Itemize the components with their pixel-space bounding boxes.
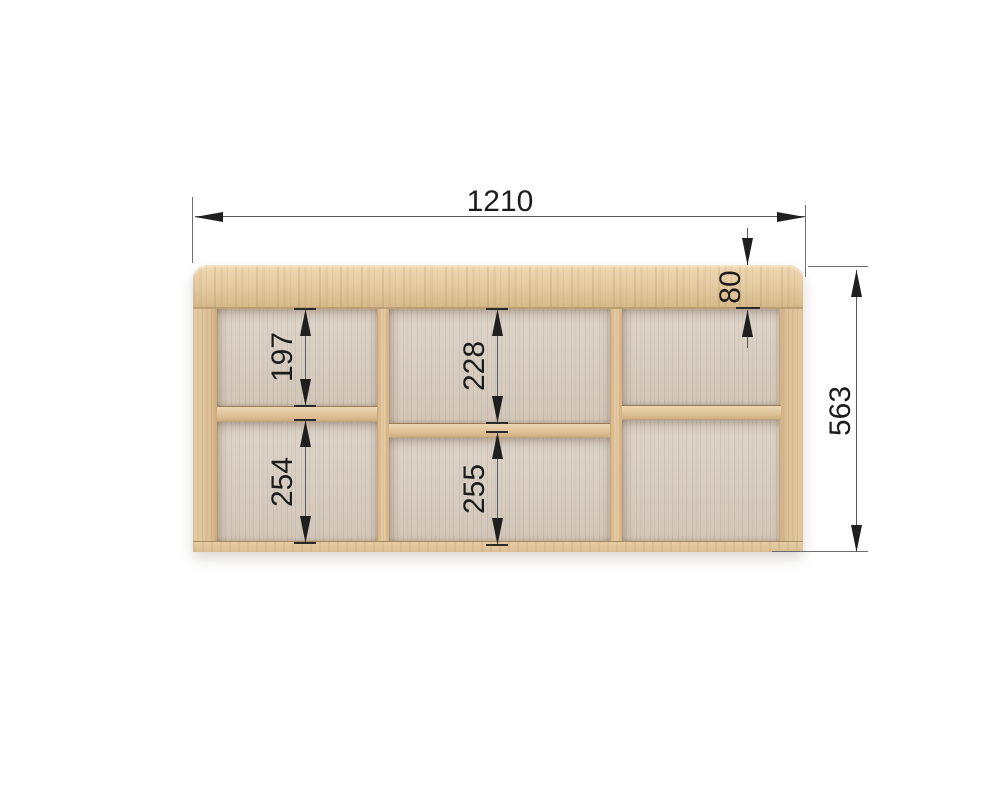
dimension-label-bottom-middle-cell: 255 [460, 464, 490, 514]
arrowhead-down-icon [742, 238, 753, 265]
extension-line [805, 205, 806, 277]
extension-tick [486, 422, 508, 424]
drawing-canvas: 1210 563 80 197 228 [0, 0, 1000, 800]
arrowhead-right-icon [777, 212, 805, 222]
right-side-panel [779, 307, 803, 551]
extension-tick [294, 308, 316, 310]
vertical-divider-left [377, 307, 389, 541]
extension-line [772, 551, 868, 552]
extension-tick [486, 308, 508, 310]
extension-tick [736, 307, 760, 309]
dimension-label-rail: 80 [716, 270, 746, 303]
top-rail [193, 265, 803, 309]
dimension-label-height: 563 [826, 386, 856, 436]
bottom-panel [193, 541, 803, 552]
left-side-panel [193, 307, 217, 551]
extension-tick [294, 542, 316, 544]
arrowhead-down-icon [851, 525, 862, 552]
extension-line [808, 266, 868, 267]
extension-line [192, 197, 193, 263]
dimension-label-top-left-cell: 197 [268, 332, 298, 382]
arrowhead-up-icon [851, 270, 862, 297]
compartment-bottom-right [622, 418, 781, 541]
shelf-right-column [622, 405, 781, 420]
dimension-label-top-middle-cell: 228 [460, 341, 490, 391]
extension-tick [294, 405, 316, 407]
vertical-divider-right [610, 307, 622, 541]
extension-tick [294, 419, 316, 421]
arrowhead-left-icon [195, 212, 223, 222]
extension-tick [486, 431, 508, 433]
dimension-label-width: 1210 [467, 187, 534, 217]
extension-tick [486, 544, 508, 546]
compartment-top-right [622, 307, 781, 405]
dimension-label-bottom-left-cell: 254 [268, 457, 298, 507]
